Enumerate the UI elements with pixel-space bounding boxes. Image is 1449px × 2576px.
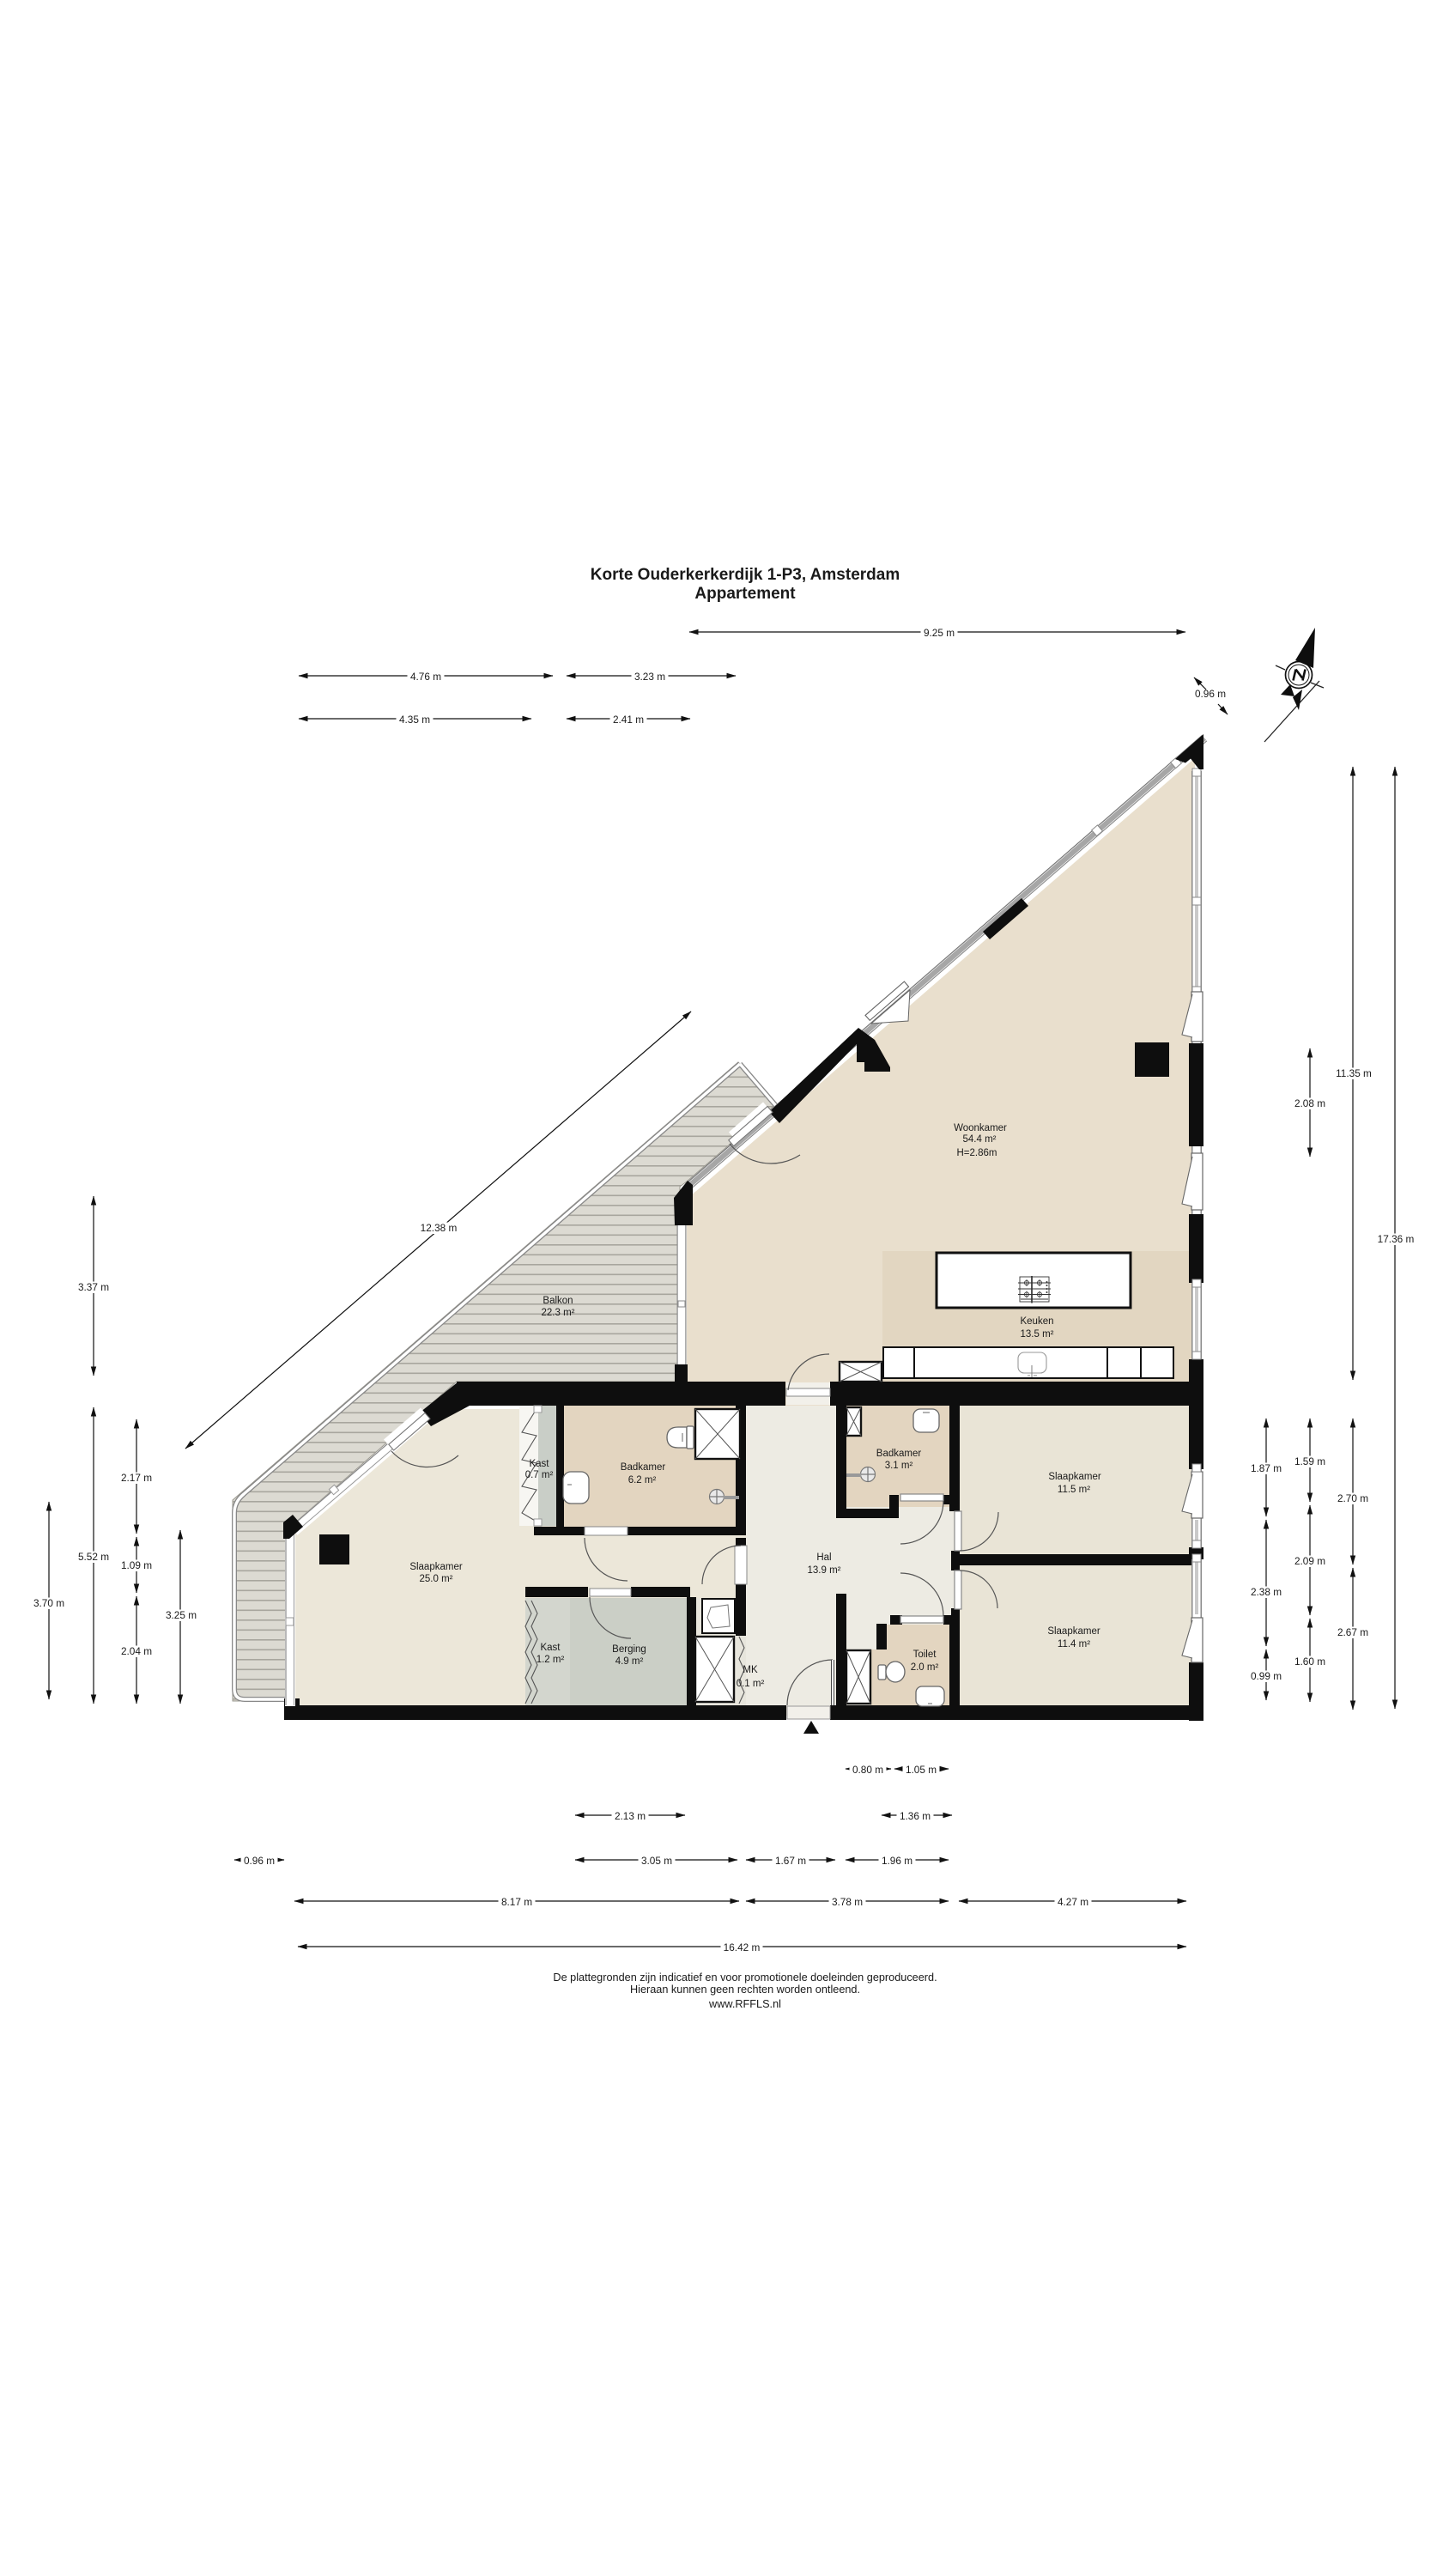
svg-text:2.04 m: 2.04 m <box>121 1645 152 1657</box>
svg-text:1.09 m: 1.09 m <box>121 1559 152 1571</box>
svg-text:2.17 m: 2.17 m <box>121 1472 152 1484</box>
svg-text:3.25 m: 3.25 m <box>166 1609 197 1621</box>
svg-text:4.9 m²: 4.9 m² <box>615 1656 644 1667</box>
svg-text:2.38 m: 2.38 m <box>1251 1586 1282 1598</box>
svg-text:1.2 m²: 1.2 m² <box>537 1655 565 1665</box>
svg-text:2.13 m: 2.13 m <box>615 1810 646 1822</box>
svg-text:3.1 m²: 3.1 m² <box>885 1461 913 1471</box>
svg-text:Hal: Hal <box>816 1552 831 1563</box>
svg-text:Slaapkamer: Slaapkamer <box>409 1562 463 1572</box>
svg-text:Slaapkamer: Slaapkamer <box>1048 1472 1101 1482</box>
svg-text:2.70 m: 2.70 m <box>1337 1492 1368 1504</box>
svg-text:Badkamer: Badkamer <box>876 1449 922 1459</box>
svg-text:Appartement: Appartement <box>694 585 796 603</box>
svg-text:11.35 m: 11.35 m <box>1336 1067 1372 1079</box>
svg-text:2.41 m: 2.41 m <box>613 714 644 726</box>
svg-text:2.0 m²: 2.0 m² <box>911 1662 939 1673</box>
svg-text:5.52 m: 5.52 m <box>78 1551 109 1563</box>
svg-text:Kast: Kast <box>529 1459 549 1469</box>
svg-text:4.27 m: 4.27 m <box>1058 1896 1088 1908</box>
svg-text:1.05 m: 1.05 m <box>906 1764 937 1776</box>
svg-text:1.96 m: 1.96 m <box>882 1855 912 1867</box>
svg-text:13.9 m²: 13.9 m² <box>808 1565 841 1576</box>
svg-text:2.67 m: 2.67 m <box>1337 1626 1368 1638</box>
svg-text:Berging: Berging <box>612 1644 646 1655</box>
svg-text:1.59 m: 1.59 m <box>1294 1455 1325 1467</box>
svg-text:11.5 m²: 11.5 m² <box>1058 1485 1090 1495</box>
svg-text:9.25 m: 9.25 m <box>924 627 955 639</box>
svg-text:13.5 m²: 13.5 m² <box>1021 1329 1054 1340</box>
svg-text:2.08 m: 2.08 m <box>1294 1097 1325 1109</box>
svg-text:Toilet: Toilet <box>913 1649 937 1660</box>
svg-text:MK: MK <box>743 1665 758 1675</box>
svg-text:12.38 m: 12.38 m <box>421 1222 458 1234</box>
svg-text:1.36 m: 1.36 m <box>900 1810 931 1822</box>
svg-text:0.80 m: 0.80 m <box>852 1764 883 1776</box>
svg-text:3.05 m: 3.05 m <box>641 1855 672 1867</box>
svg-text:8.17 m: 8.17 m <box>501 1896 532 1908</box>
svg-text:25.0 m²: 25.0 m² <box>420 1574 453 1584</box>
svg-text:Korte Ouderkerkerdijk 1-P3, Am: Korte Ouderkerkerdijk 1-P3, Amsterdam <box>591 566 900 584</box>
svg-text:3.70 m: 3.70 m <box>33 1597 64 1609</box>
svg-text:0.1 m²: 0.1 m² <box>737 1679 765 1689</box>
svg-text:3.37 m: 3.37 m <box>78 1281 109 1293</box>
svg-text:11.4 m²: 11.4 m² <box>1058 1639 1090 1649</box>
svg-text:0.96 m: 0.96 m <box>1195 688 1226 700</box>
svg-text:1.87 m: 1.87 m <box>1251 1462 1282 1474</box>
svg-text:De plattegronden zijn indicati: De plattegronden zijn indicatief en voor… <box>553 1971 937 1984</box>
svg-text:Slaapkamer: Slaapkamer <box>1047 1626 1100 1637</box>
svg-text:Hieraan kunnen geen rechten wo: Hieraan kunnen geen rechten worden ontle… <box>630 1984 860 1996</box>
svg-text:54.4 m²: 54.4 m² <box>963 1134 997 1145</box>
svg-text:1.60 m: 1.60 m <box>1294 1656 1325 1668</box>
svg-text:Badkamer: Badkamer <box>621 1462 666 1473</box>
svg-text:0.96 m: 0.96 m <box>244 1855 275 1867</box>
svg-text:Keuken: Keuken <box>1020 1316 1053 1327</box>
svg-text:Balkon: Balkon <box>543 1296 573 1306</box>
svg-text:1.67 m: 1.67 m <box>775 1855 806 1867</box>
svg-text:3.23 m: 3.23 m <box>634 671 665 683</box>
svg-text:Kast: Kast <box>540 1643 561 1653</box>
svg-text:0.7 m²: 0.7 m² <box>525 1470 554 1480</box>
svg-text:www.RFFLS.nl: www.RFFLS.nl <box>708 1998 781 2010</box>
svg-text:0.99 m: 0.99 m <box>1251 1670 1282 1682</box>
svg-text:4.35 m: 4.35 m <box>399 714 430 726</box>
svg-text:16.42 m: 16.42 m <box>724 1941 761 1953</box>
svg-text:Woonkamer: Woonkamer <box>954 1123 1007 1133</box>
svg-text:4.76 m: 4.76 m <box>410 671 441 683</box>
svg-text:3.78 m: 3.78 m <box>832 1896 863 1908</box>
svg-text:17.36 m: 17.36 m <box>1378 1233 1415 1245</box>
svg-text:2.09 m: 2.09 m <box>1294 1555 1325 1567</box>
svg-text:22.3 m²: 22.3 m² <box>542 1308 575 1318</box>
svg-text:H=2.86m: H=2.86m <box>957 1148 997 1158</box>
svg-text:6.2 m²: 6.2 m² <box>628 1475 657 1485</box>
